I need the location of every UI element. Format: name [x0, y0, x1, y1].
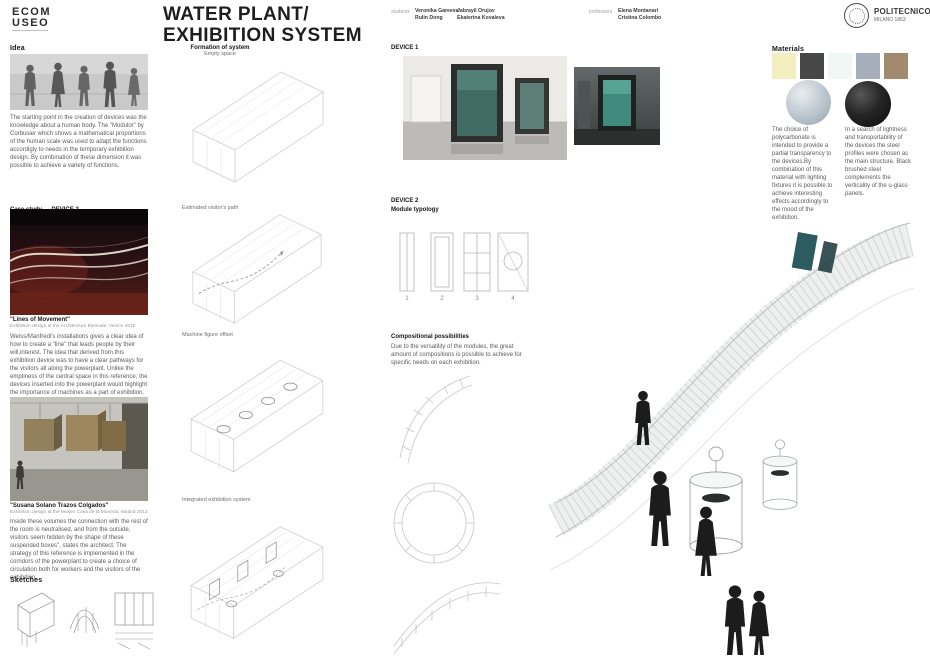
material-swatch-uglass: [828, 53, 852, 79]
materials-body-right: In a search of lightness and transportab…: [845, 126, 912, 198]
students-col2: Jabrayil Orujov Ekaterina Kovaleva: [457, 8, 505, 22]
human-silhouette: [649, 471, 671, 546]
politecnico-text: POLITECNICO MILANO 1863: [874, 8, 930, 23]
reference2-body: Inside these volumes the connection with…: [10, 518, 149, 582]
formation-drawing-empty-space: [183, 52, 333, 192]
reference1-photo-art: [10, 209, 148, 315]
professors-label: professors: [589, 9, 612, 15]
idea-heading: Idea: [10, 45, 25, 52]
poster-title: WATER PLANT/ EXHIBITION SYSTEM: [163, 5, 362, 47]
module-typology-row: 1 2 3 4: [391, 231, 530, 302]
ecomuseo-logo: ECOM USEO: [12, 7, 51, 31]
title-line1: WATER PLANT/: [163, 5, 362, 26]
device2-subheading: Module typology: [391, 207, 439, 213]
module-3: 3: [461, 231, 493, 302]
device1-heading: DEVICE 1: [391, 45, 418, 51]
reference2-photo-art: [10, 397, 148, 501]
device2-heading: DEVICE 2: [391, 198, 418, 204]
formation-step4-label: Integrated exhibition system: [182, 497, 250, 503]
module-4: 4: [496, 231, 530, 302]
professor-name: Cristina Colombo: [618, 15, 661, 22]
students-label: students: [391, 9, 410, 15]
module-2: 2: [426, 231, 458, 302]
device1-photo-detail-art: [574, 67, 660, 145]
materials-swatches: [772, 53, 908, 79]
device1-photo-main: [403, 56, 567, 160]
compositional-heading: Compositional possibilities: [391, 334, 469, 340]
idea-photo-art: [10, 54, 148, 110]
composition-arc-sketch-1: [392, 366, 474, 466]
professors-col: Elena Montanari Cristina Colombo: [618, 8, 661, 22]
poster-root: { "header": { "logo_line1": "ECOM", "log…: [0, 0, 930, 658]
device1-photo-detail: [574, 67, 660, 145]
logo-line2: USEO: [12, 18, 51, 29]
materials-heading: Materials: [772, 46, 804, 53]
human-silhouette: [725, 585, 745, 655]
politecnico-name: POLITECNICO: [874, 8, 930, 16]
professor-name: Elena Montanari: [618, 8, 661, 15]
students-col1: Veronika Gareeva Rulin Dong: [415, 8, 459, 22]
idea-body: The starting point in the creation of de…: [10, 114, 149, 170]
composition-ring-sketch: [390, 477, 478, 569]
reference2-photo: [10, 397, 148, 501]
reference1-caption: Exhibition design at the Architecture Bi…: [10, 324, 135, 329]
composition-arc-sketch-2: [388, 570, 504, 656]
material-sphere-dark: [845, 81, 891, 127]
reference1-photo: [10, 209, 148, 315]
glass-cylinder-device-2: [763, 440, 797, 510]
sketch-drawing-1: [12, 585, 58, 651]
material-swatch-wood: [884, 53, 908, 79]
module-number: 2: [440, 296, 443, 302]
material-swatch-bluegray: [856, 53, 880, 79]
module-number: 3: [475, 296, 478, 302]
reference1-body: Weiss/Manfredi's installations gives a c…: [10, 333, 149, 397]
material-sphere-light: [786, 80, 831, 125]
student-name: Veronika Gareeva: [415, 8, 459, 15]
sketches-heading: Sketches: [10, 577, 42, 584]
student-name: Rulin Dong: [415, 15, 459, 22]
module-number: 4: [511, 296, 514, 302]
reference2-caption: Exhibition design at the Museo Casa de l…: [10, 510, 148, 515]
device1-photo-main-art: [403, 56, 567, 160]
logo-tagline-rule: [12, 30, 48, 31]
sketch-drawing-2: [66, 585, 102, 645]
exhibition-screen-panel: [792, 232, 818, 271]
material-swatch-steel: [800, 53, 824, 79]
sketch-drawing-3: [110, 585, 158, 651]
politecnico-sub: MILANO 1863: [874, 17, 930, 23]
module-number: 1: [405, 296, 408, 302]
student-name: Jabrayil Orujov: [457, 8, 505, 15]
main-perspective-drawing: [548, 218, 918, 658]
formation-drawing-machine-offset: [181, 340, 333, 482]
politecnico-seal-icon: [844, 3, 869, 28]
human-silhouette: [695, 507, 717, 576]
compositional-body: Due to the versatility of the modules, t…: [391, 343, 529, 367]
module-1: 1: [391, 231, 423, 302]
sketches-strip: [12, 585, 158, 651]
title-line2: EXHIBITION SYSTEM: [163, 26, 362, 47]
formation-drawing-visitor-path: [181, 195, 333, 333]
politecnico-logo: POLITECNICO MILANO 1863: [844, 3, 930, 28]
human-silhouette: [749, 591, 769, 655]
module-4-drawing: [496, 231, 530, 293]
formation-step3-label: Machine figure offset: [182, 332, 233, 338]
idea-photo: [10, 54, 148, 110]
module-1-drawing: [391, 231, 423, 293]
module-2-drawing: [426, 231, 458, 293]
material-swatch-polycarbonate: [772, 53, 796, 79]
formation-drawing-integrated-system: [181, 505, 333, 650]
student-name: Ekaterina Kovaleva: [457, 15, 505, 22]
reference1-title: "Lines of Movement": [10, 317, 70, 323]
reference2-title: "Susana Solano Trazos Colgados": [10, 503, 108, 509]
module-3-drawing: [461, 231, 493, 293]
materials-body-left: The choice of polycarbonate is intended …: [772, 126, 838, 222]
